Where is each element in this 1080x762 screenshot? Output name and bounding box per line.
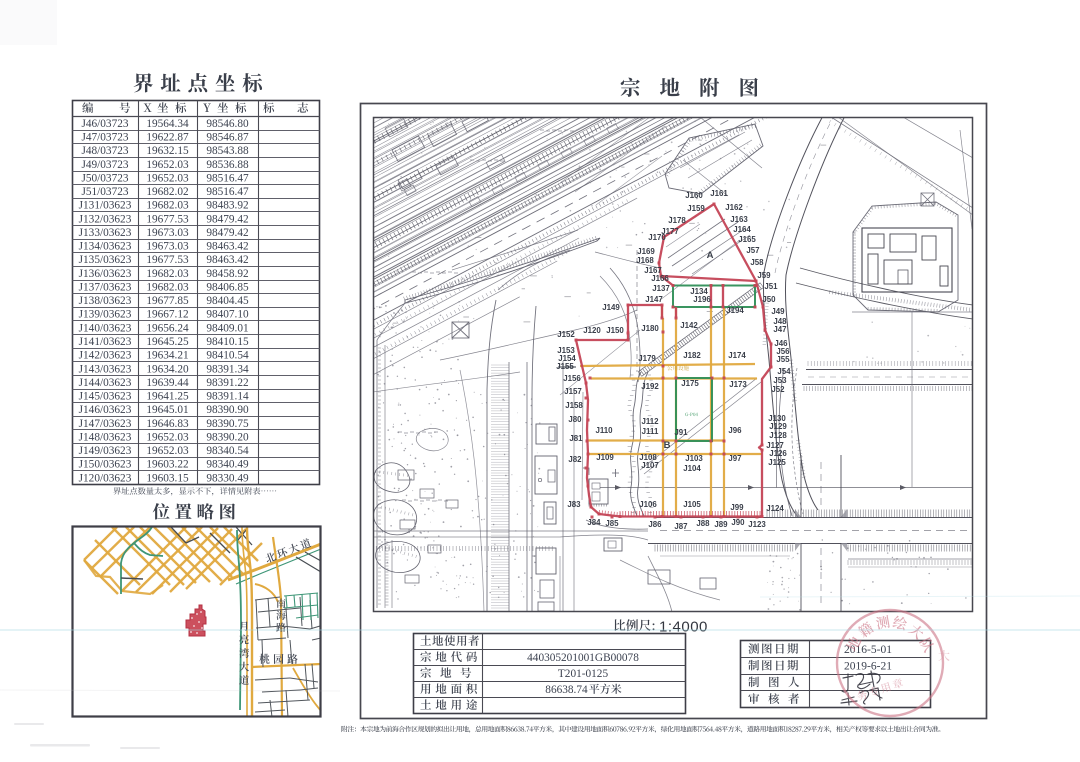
svg-text:J59: J59: [757, 271, 771, 280]
svg-text:J90: J90: [731, 518, 745, 527]
svg-text:98536.88: 98536.88: [206, 159, 249, 171]
svg-text:J49: J49: [771, 307, 785, 316]
svg-text:98463.42: 98463.42: [206, 254, 249, 266]
svg-text:J130: J130: [768, 414, 786, 423]
svg-text:J85: J85: [605, 519, 619, 528]
svg-text:J136/03623: J136/03623: [79, 268, 132, 280]
svg-text:J132/03623: J132/03623: [79, 213, 132, 225]
svg-text:19673.03: 19673.03: [146, 227, 189, 239]
svg-text:J99: J99: [730, 503, 744, 512]
svg-text:J182: J182: [683, 351, 701, 360]
svg-text:J149: J149: [602, 303, 620, 312]
svg-text:98409.01: 98409.01: [206, 322, 248, 334]
svg-text:J147/03623: J147/03623: [79, 418, 132, 430]
svg-text:J131/03623: J131/03623: [79, 200, 132, 212]
svg-text:J140/03623: J140/03623: [79, 322, 132, 334]
svg-text:J89: J89: [714, 520, 728, 529]
svg-text:19634.21: 19634.21: [146, 350, 188, 362]
svg-text:J52: J52: [771, 385, 785, 394]
svg-text:J47/03723: J47/03723: [81, 132, 128, 144]
svg-text:19682.02: 19682.02: [146, 186, 189, 198]
svg-text:J196: J196: [693, 295, 711, 304]
svg-text:J162: J162: [725, 203, 743, 212]
svg-text:98479.42: 98479.42: [206, 227, 249, 239]
svg-text:J174: J174: [728, 351, 746, 360]
svg-text:J111: J111: [642, 427, 659, 436]
svg-text:98390.75: 98390.75: [206, 418, 249, 430]
svg-text:J150: J150: [606, 326, 624, 335]
svg-text:J47: J47: [773, 325, 787, 334]
svg-text:J163: J163: [730, 215, 748, 224]
svg-text:J180: J180: [641, 324, 659, 333]
svg-text:A: A: [707, 250, 714, 261]
svg-text:J106: J106: [639, 500, 657, 509]
svg-text:19677.53: 19677.53: [146, 254, 189, 266]
svg-text:98458.92: 98458.92: [206, 268, 249, 280]
svg-text:19652.03: 19652.03: [146, 431, 189, 443]
svg-text:J150/03623: J150/03623: [79, 459, 132, 471]
svg-text:J137/03623: J137/03623: [79, 282, 132, 294]
svg-text:J51/03723: J51/03723: [81, 186, 128, 198]
svg-text:J141/03623: J141/03623: [79, 336, 132, 348]
svg-text:19645.25: 19645.25: [146, 336, 189, 348]
svg-text:J54: J54: [777, 367, 791, 376]
svg-text:19603.22: 19603.22: [146, 459, 189, 471]
svg-text:J50/03723: J50/03723: [81, 172, 128, 184]
svg-text:J86: J86: [648, 520, 662, 529]
svg-text:J50: J50: [762, 295, 776, 304]
svg-text:98340.49: 98340.49: [206, 459, 249, 471]
svg-text:J156: J156: [563, 374, 581, 383]
svg-text:J144/03623: J144/03623: [79, 377, 132, 389]
svg-text:J135/03623: J135/03623: [79, 254, 132, 266]
svg-text:J173: J173: [729, 380, 747, 389]
svg-text:T201-0125: T201-0125: [558, 668, 609, 680]
svg-text:J160: J160: [685, 191, 703, 200]
svg-text:J159: J159: [687, 204, 705, 213]
svg-text:19652.03: 19652.03: [146, 159, 189, 171]
svg-text:J143/03623: J143/03623: [79, 363, 132, 375]
svg-text:98543.88: 98543.88: [206, 145, 249, 157]
svg-text:J194: J194: [726, 306, 744, 315]
svg-text:J133/03623: J133/03623: [79, 227, 132, 239]
svg-text:J161: J161: [710, 189, 728, 198]
svg-text:J145/03623: J145/03623: [79, 391, 132, 403]
svg-text:19646.83: 19646.83: [146, 418, 189, 430]
svg-text:J109: J109: [596, 453, 614, 462]
svg-text:98483.92: 98483.92: [206, 200, 249, 212]
svg-text:2019-6-21: 2019-6-21: [844, 661, 892, 673]
svg-text:98406.85: 98406.85: [206, 282, 249, 294]
svg-text:J152: J152: [557, 330, 575, 339]
svg-text:19634.20: 19634.20: [146, 363, 189, 375]
svg-text:98546.80: 98546.80: [206, 118, 249, 130]
svg-text:J142/03623: J142/03623: [79, 350, 132, 362]
svg-text:J46/03723: J46/03723: [81, 118, 128, 130]
svg-text:J129: J129: [769, 422, 787, 431]
svg-text:J149/03623: J149/03623: [79, 445, 132, 457]
svg-text:98546.87: 98546.87: [206, 132, 249, 144]
svg-text:J82: J82: [568, 455, 582, 464]
svg-text:J51: J51: [764, 282, 778, 291]
svg-text:19673.03: 19673.03: [146, 241, 189, 253]
svg-text:J168: J168: [636, 256, 654, 265]
svg-text:19564.34: 19564.34: [146, 118, 189, 130]
svg-text:J126: J126: [769, 449, 787, 458]
svg-text:J125: J125: [768, 458, 786, 467]
svg-text:J178: J178: [668, 216, 686, 225]
svg-text:J53: J53: [773, 376, 787, 385]
svg-text:98391.14: 98391.14: [206, 391, 249, 403]
svg-text:J164: J164: [733, 225, 751, 234]
svg-text:J55: J55: [776, 355, 790, 364]
svg-text:19603.15: 19603.15: [146, 472, 189, 484]
svg-text:J179: J179: [638, 354, 656, 363]
svg-text:98463.42: 98463.42: [206, 241, 249, 253]
svg-text:19652.03: 19652.03: [146, 172, 189, 184]
svg-text:J88: J88: [696, 519, 710, 528]
svg-text:98330.49: 98330.49: [206, 472, 249, 484]
svg-text:J107: J107: [641, 461, 659, 470]
svg-text:J84: J84: [587, 518, 601, 527]
svg-text:J148/03623: J148/03623: [79, 431, 132, 443]
svg-text:J103: J103: [685, 454, 703, 463]
svg-text:19645.01: 19645.01: [146, 404, 188, 416]
svg-text:19682.03: 19682.03: [146, 200, 189, 212]
svg-text:J170: J170: [648, 233, 666, 242]
svg-text:J127: J127: [766, 441, 784, 450]
svg-text:J128: J128: [769, 431, 787, 440]
svg-text:98410.54: 98410.54: [206, 350, 249, 362]
svg-text:J134/03623: J134/03623: [79, 241, 132, 253]
svg-text:J142: J142: [680, 321, 698, 330]
svg-text:19682.03: 19682.03: [146, 282, 189, 294]
svg-text:J146/03623: J146/03623: [79, 404, 132, 416]
svg-text:J120/03623: J120/03623: [79, 472, 132, 484]
svg-text:98516.47: 98516.47: [206, 172, 249, 184]
svg-text:J158: J158: [565, 401, 583, 410]
svg-text:J57: J57: [746, 246, 760, 255]
svg-text:B: B: [664, 440, 671, 451]
svg-text:98410.15: 98410.15: [206, 336, 249, 348]
svg-text:J105: J105: [683, 500, 701, 509]
svg-text:J87: J87: [674, 522, 688, 531]
svg-text:J192: J192: [641, 382, 659, 391]
svg-text:J80: J80: [568, 415, 582, 424]
svg-text:J48/03723: J48/03723: [81, 145, 128, 157]
svg-text:J123: J123: [748, 520, 766, 529]
svg-text:J165: J165: [738, 235, 756, 244]
svg-text:19677.85: 19677.85: [146, 295, 189, 307]
svg-text:19639.44: 19639.44: [146, 377, 189, 389]
svg-text:J58: J58: [750, 258, 764, 267]
svg-text:19682.03: 19682.03: [146, 268, 189, 280]
svg-text:19641.25: 19641.25: [146, 391, 189, 403]
svg-text:J139/03623: J139/03623: [79, 309, 132, 321]
svg-text:98390.90: 98390.90: [206, 404, 249, 416]
svg-text:J49/03723: J49/03723: [81, 159, 128, 171]
svg-text:98391.22: 98391.22: [206, 377, 249, 389]
svg-text:J155: J155: [556, 362, 574, 371]
svg-text:19656.24: 19656.24: [146, 322, 189, 334]
svg-text:19667.12: 19667.12: [146, 309, 189, 321]
svg-text:19677.53: 19677.53: [146, 213, 189, 225]
svg-text:J169: J169: [637, 247, 655, 256]
svg-text:J147: J147: [645, 295, 663, 304]
svg-text:J138/03623: J138/03623: [79, 295, 132, 307]
svg-text:19632.15: 19632.15: [146, 145, 189, 157]
svg-text:J97: J97: [728, 454, 742, 463]
svg-text:98404.45: 98404.45: [206, 295, 249, 307]
svg-text:J175: J175: [681, 379, 699, 388]
svg-text:J110: J110: [595, 426, 613, 435]
svg-text:2016-5-01: 2016-5-01: [844, 644, 892, 656]
svg-text:98516.47: 98516.47: [206, 186, 249, 198]
svg-text:19652.03: 19652.03: [146, 445, 189, 457]
svg-text:J137: J137: [652, 284, 670, 293]
svg-text:19622.87: 19622.87: [146, 132, 189, 144]
svg-text:J120: J120: [583, 326, 601, 335]
svg-text:98390.20: 98390.20: [206, 431, 249, 443]
svg-text:86638.74: 86638.74: [545, 684, 588, 696]
svg-text:J157: J157: [564, 387, 582, 396]
svg-text:J124: J124: [766, 504, 784, 513]
svg-text:J96: J96: [728, 426, 742, 435]
svg-text:98391.34: 98391.34: [206, 363, 249, 375]
svg-text:98407.10: 98407.10: [206, 309, 249, 321]
svg-text:J91: J91: [674, 428, 688, 437]
svg-text:J166: J166: [651, 274, 669, 283]
svg-text:J104: J104: [683, 464, 701, 473]
svg-text:98479.42: 98479.42: [206, 213, 249, 225]
svg-text:J81: J81: [569, 434, 583, 443]
svg-text:440305201001GB00078: 440305201001GB00078: [527, 652, 639, 664]
svg-text:J83: J83: [567, 500, 581, 509]
svg-text:98340.54: 98340.54: [206, 445, 249, 457]
svg-text:J112: J112: [641, 417, 659, 426]
